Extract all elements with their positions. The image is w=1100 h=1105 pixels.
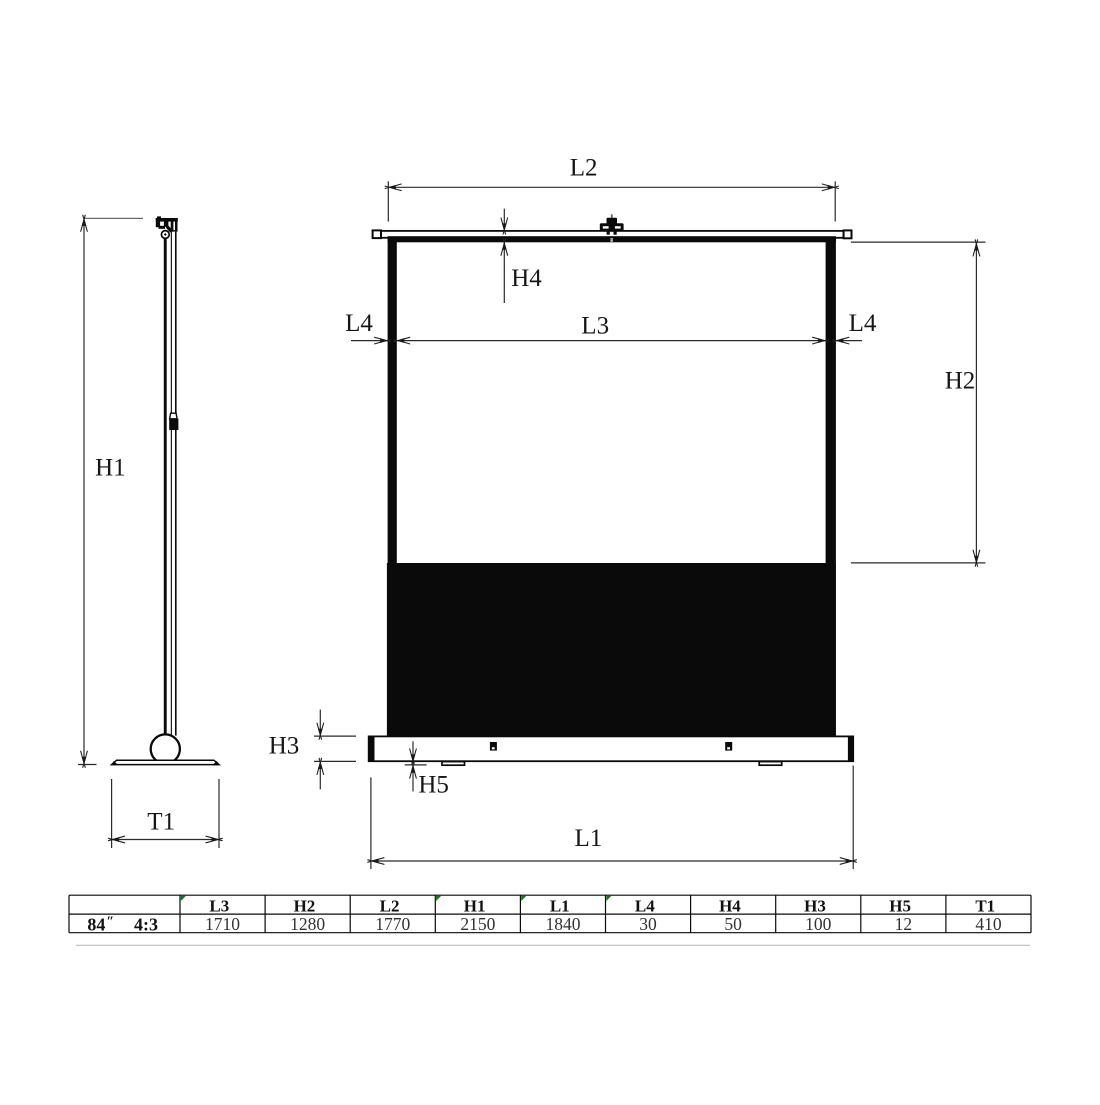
svg-text:50: 50 xyxy=(724,914,742,934)
svg-text:T1: T1 xyxy=(147,809,175,836)
svg-text:12: 12 xyxy=(895,914,913,934)
svg-text:H5: H5 xyxy=(889,896,911,915)
svg-text:L3: L3 xyxy=(581,313,609,340)
svg-text:L3: L3 xyxy=(209,896,229,915)
svg-text:30: 30 xyxy=(639,914,657,934)
svg-text:H5: H5 xyxy=(418,771,449,798)
svg-text:H1: H1 xyxy=(464,896,486,915)
svg-text:L1: L1 xyxy=(575,825,603,852)
svg-text:H1: H1 xyxy=(95,455,126,482)
svg-text:1770: 1770 xyxy=(375,914,410,934)
svg-text:L2: L2 xyxy=(380,896,400,915)
svg-text:L2: L2 xyxy=(570,155,598,182)
svg-text:2150: 2150 xyxy=(460,914,495,934)
svg-text:H2: H2 xyxy=(945,367,976,394)
svg-text:H4: H4 xyxy=(511,265,542,292)
svg-text:L4: L4 xyxy=(345,310,373,337)
svg-text:H4: H4 xyxy=(719,896,741,915)
svg-text:L1: L1 xyxy=(550,896,570,915)
svg-text:T1: T1 xyxy=(975,896,995,915)
svg-text:100: 100 xyxy=(805,914,832,934)
svg-text:H3: H3 xyxy=(804,896,826,915)
svg-text:4:3: 4:3 xyxy=(134,915,158,935)
svg-text:1280: 1280 xyxy=(290,914,325,934)
svg-text:H3: H3 xyxy=(269,732,300,759)
svg-text:H2: H2 xyxy=(294,896,316,915)
svg-text:1840: 1840 xyxy=(545,914,580,934)
svg-text:L4: L4 xyxy=(635,896,655,915)
svg-text:84: 84 xyxy=(87,915,105,935)
svg-text:L4: L4 xyxy=(849,310,877,337)
svg-text:1710: 1710 xyxy=(205,914,240,934)
svg-text:410: 410 xyxy=(975,914,1002,934)
svg-text:″: ″ xyxy=(106,915,114,930)
